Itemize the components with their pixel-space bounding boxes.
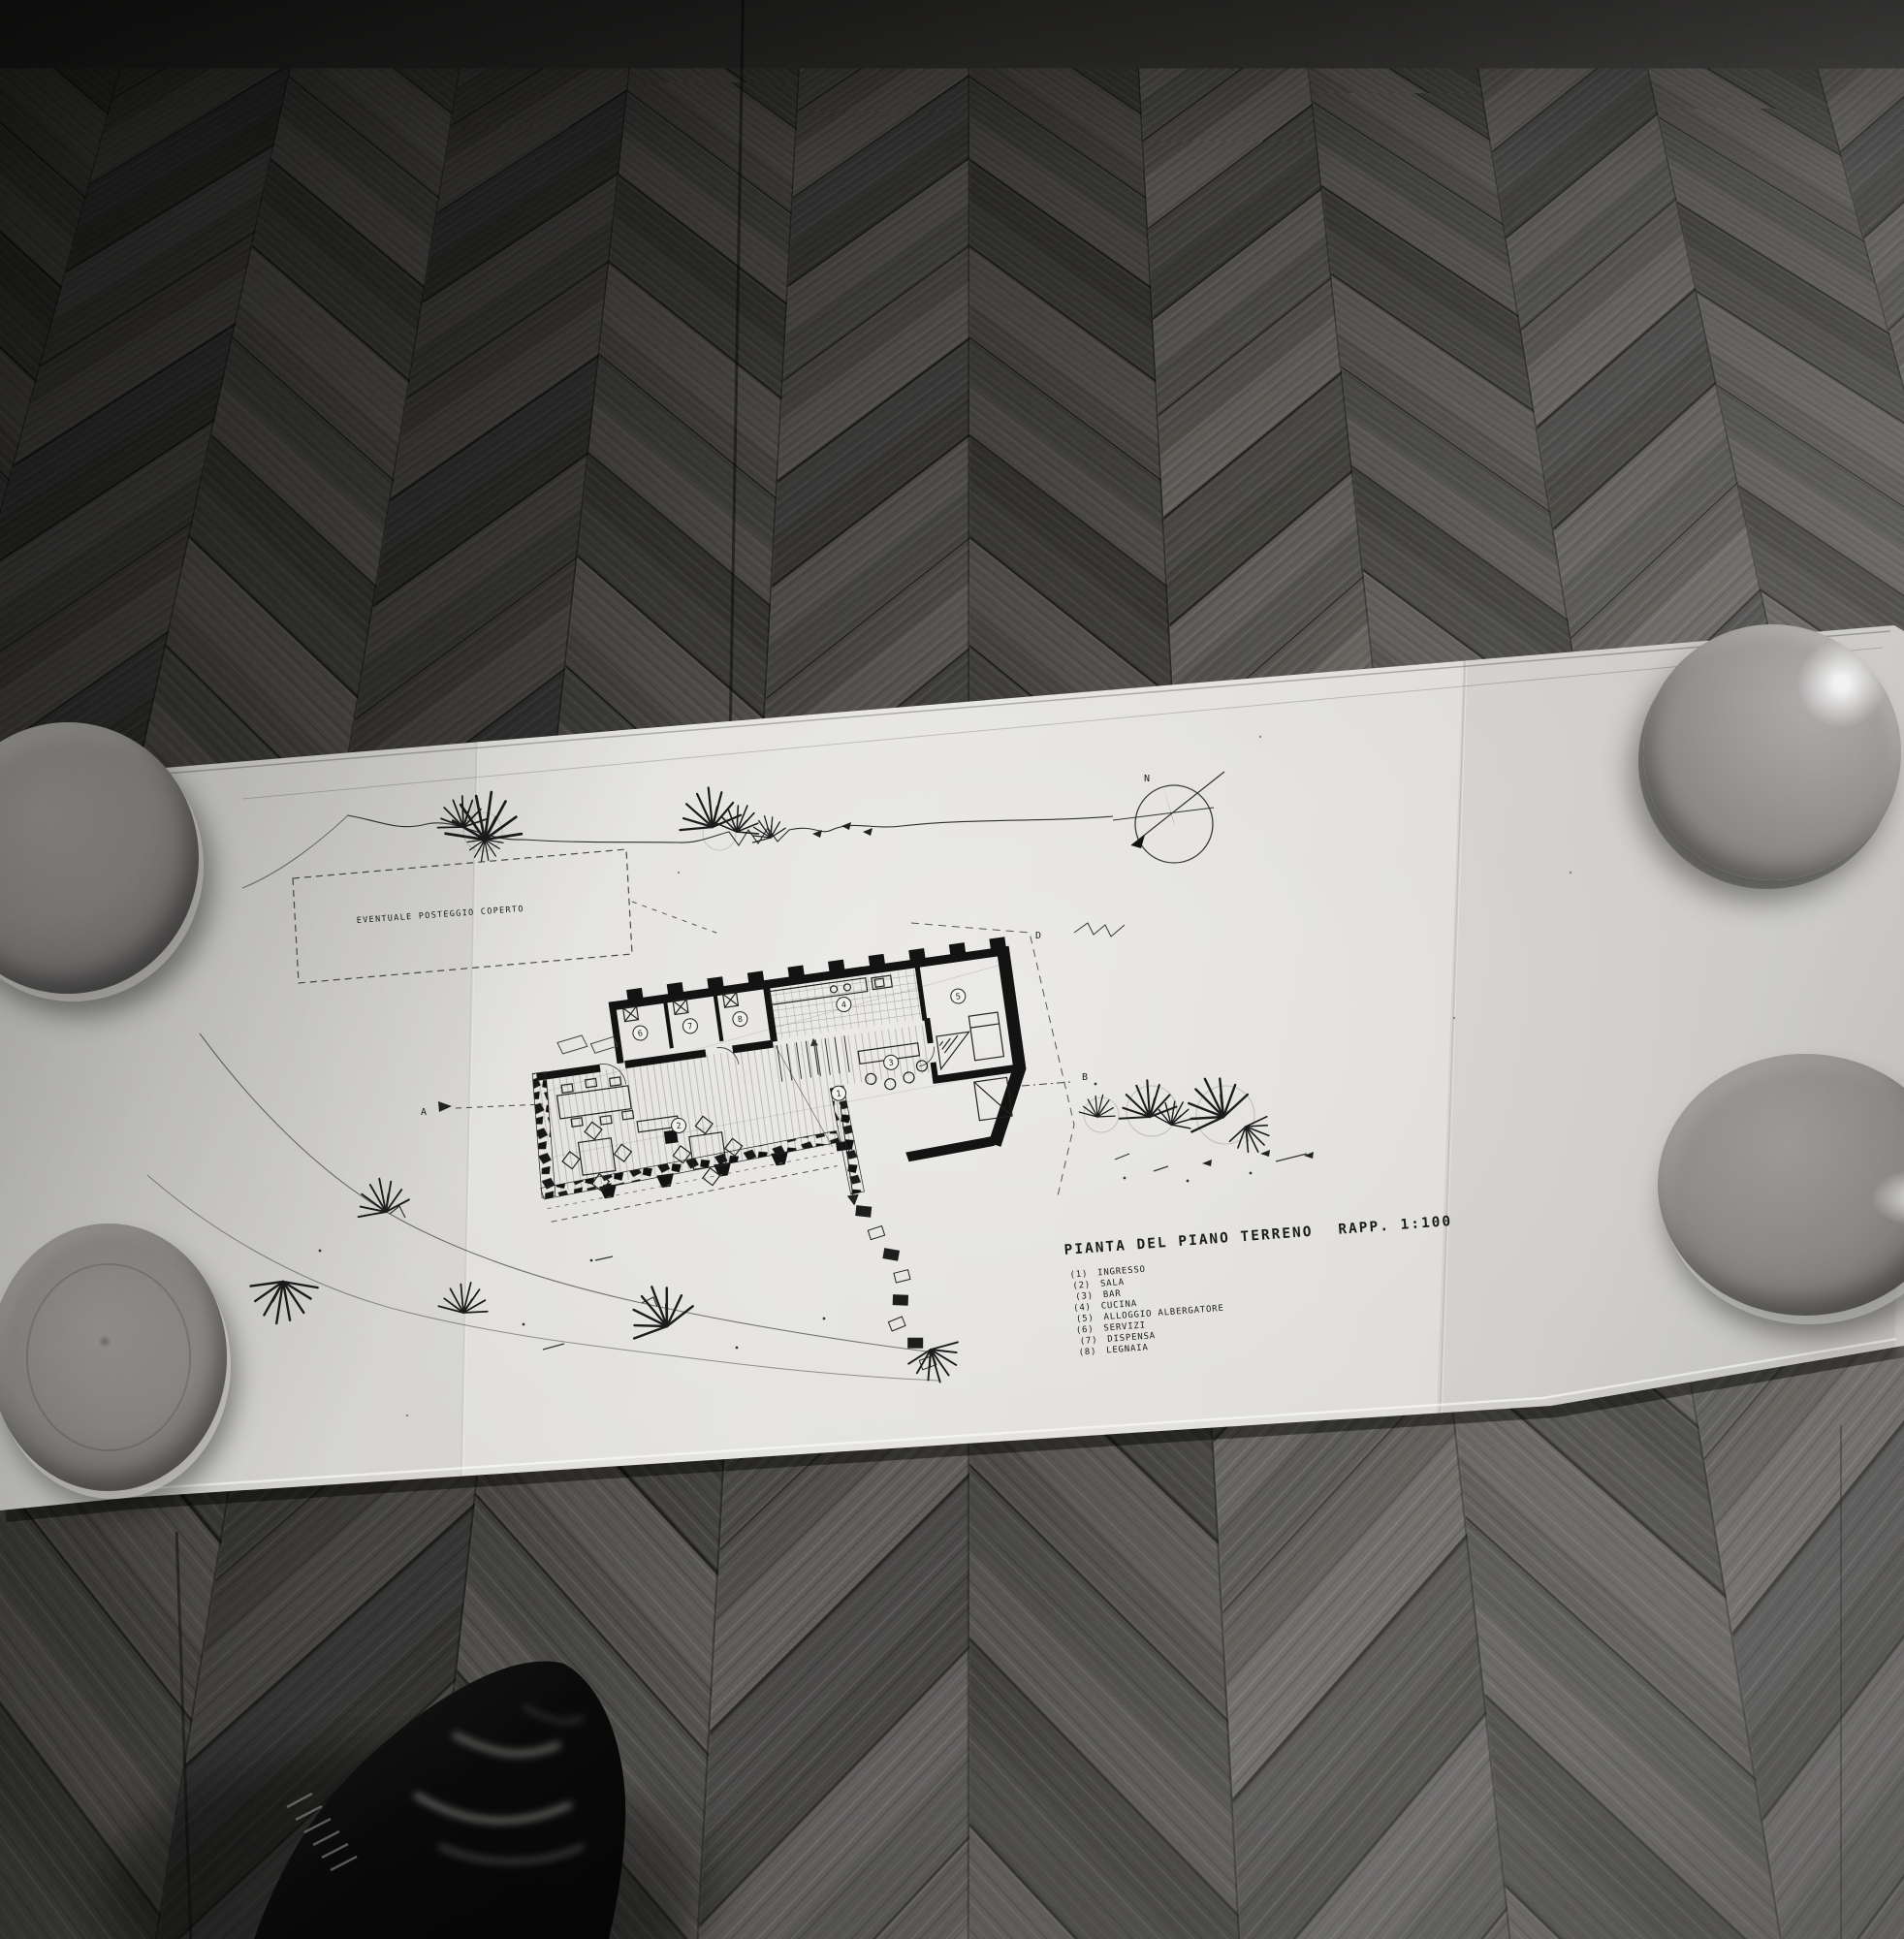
photo-scene: EVENTUALE POSTEGGIO COPERTO N	[0, 0, 1904, 1939]
leather-shoe	[0, 0, 1904, 1939]
